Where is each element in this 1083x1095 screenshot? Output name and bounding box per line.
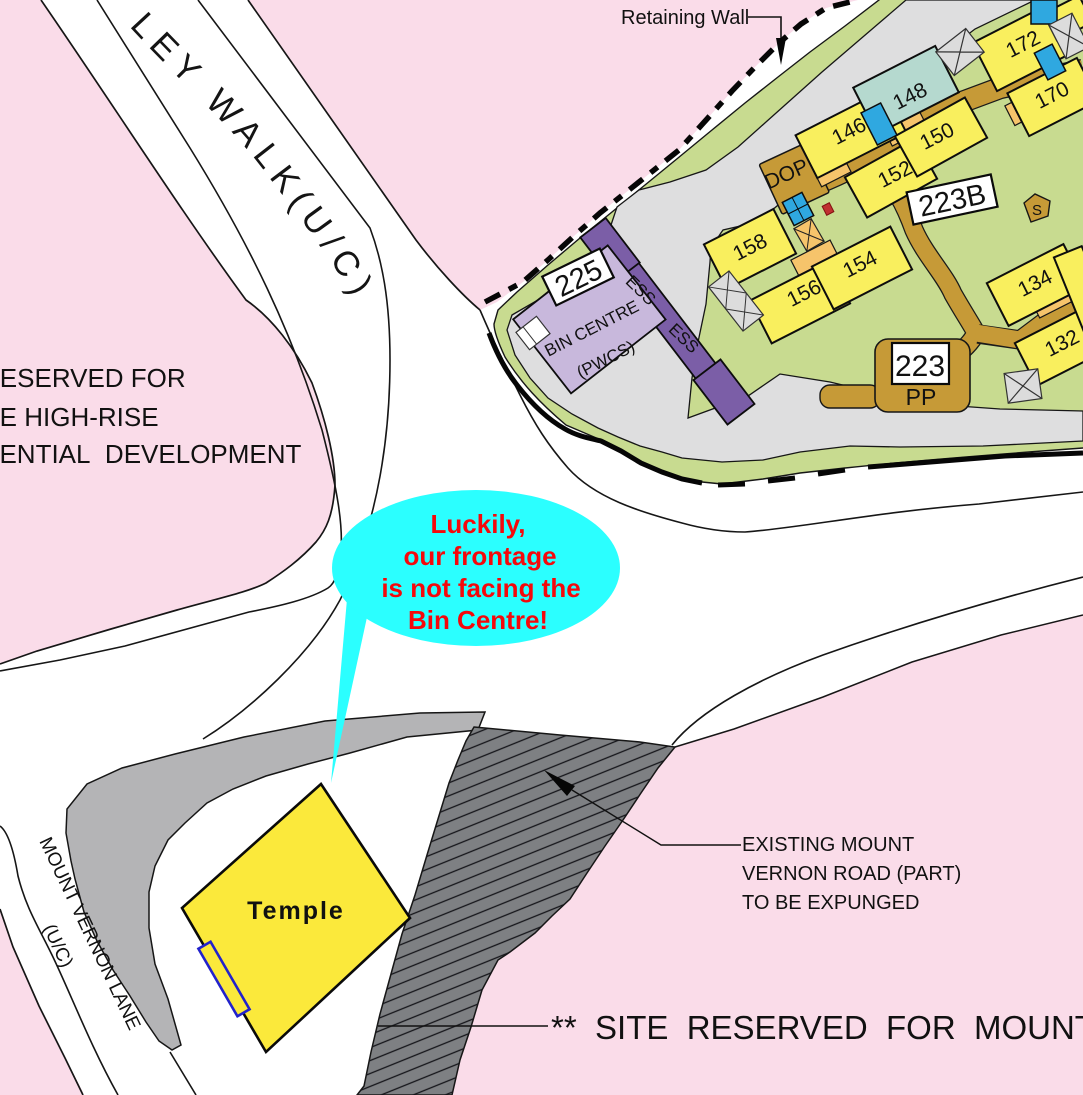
svg-text:S: S — [1032, 202, 1042, 219]
svg-text:PP: PP — [906, 384, 937, 410]
svg-text:VERNON ROAD (PART): VERNON ROAD (PART) — [742, 863, 961, 885]
svg-text:SITE RESERVED FOR: SITE RESERVED FOR — [0, 363, 186, 393]
svg-text:THE HIGH-RISE: THE HIGH-RISE — [0, 402, 159, 432]
svg-text:is not facing the: is not facing the — [381, 573, 580, 603]
svg-text:Luckily,: Luckily, — [431, 509, 526, 539]
svg-text:Temple: Temple — [247, 897, 345, 925]
svg-text:** SITE RESERVED FOR MOUNT: ** SITE RESERVED FOR MOUNT VERNON — [551, 1009, 1083, 1046]
svg-text:Bin Centre!: Bin Centre! — [408, 605, 548, 635]
svg-text:our frontage: our frontage — [403, 541, 556, 571]
svg-text:TO BE EXPUNGED: TO BE EXPUNGED — [742, 892, 919, 914]
svg-text:Retaining Wall: Retaining Wall — [621, 7, 749, 29]
svg-text:223: 223 — [895, 350, 945, 383]
svg-text:RESIDENTIAL DEVELOPMENT: RESIDENTIAL DEVELOPMENT — [0, 439, 302, 469]
svg-text:EXISTING MOUNT: EXISTING MOUNT — [742, 834, 914, 856]
